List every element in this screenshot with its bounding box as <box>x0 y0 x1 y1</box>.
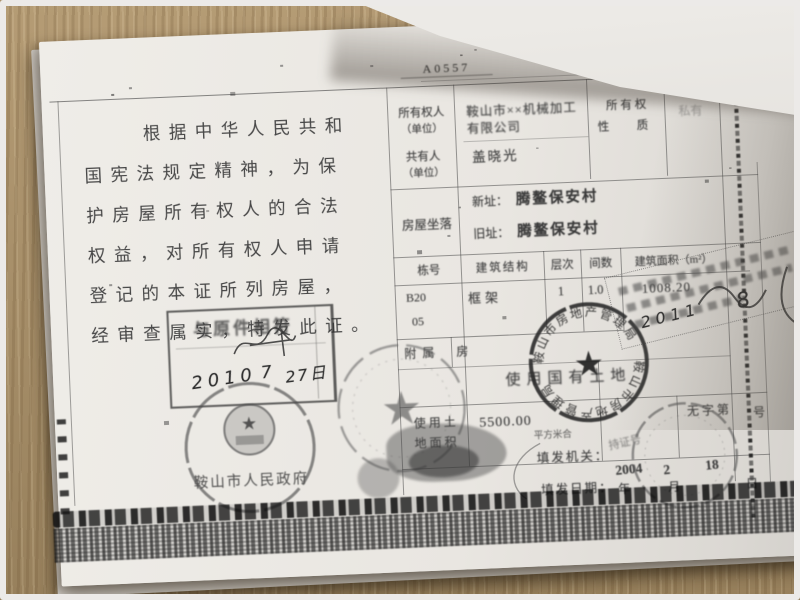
toner-speckles <box>111 94 114 96</box>
owner-label: 所有权人 <box>388 103 455 122</box>
co-owner-value: 盖晓光 <box>472 144 519 166</box>
location-old-value: 腾鳌保安村 <box>517 217 600 241</box>
issue-org-label: 填发机关： <box>536 444 609 466</box>
signature-scribble <box>229 325 310 364</box>
photo-scene: A0557 根据中华人民共和 国宪法规定精神，为保 护房屋所有权人的合法 权益，… <box>0 0 800 600</box>
government-seal: ★ 鞍山市人民政府 <box>177 375 323 521</box>
header-structure: 建筑结构 <box>462 257 543 276</box>
header-building-no: 栋号 <box>399 261 460 279</box>
building-no-value: B20 <box>406 290 427 306</box>
co-owner-label: 共有人 <box>390 147 457 166</box>
location-new-label: 新址： <box>472 191 509 209</box>
header-floors: 层次 <box>544 256 580 273</box>
owner-value-line2: 有限公司 <box>467 116 522 137</box>
location-new-value: 腾鳌保安村 <box>515 185 598 209</box>
owner-label-unit: （单位） <box>389 120 456 138</box>
table-line <box>463 136 588 142</box>
co-owner-label-unit: （单位） <box>390 164 457 182</box>
building-no-value-line2: 05 <box>412 314 425 329</box>
binding-marks <box>57 419 70 514</box>
structure-value: 框架 <box>468 287 503 307</box>
floors-value: 1 <box>558 284 565 299</box>
emblem-star-icon: ★ <box>241 413 258 434</box>
government-seal-text: 鞍山市人民政府 <box>193 470 309 492</box>
location-label: 房屋坐落 <box>396 213 459 235</box>
toner-smudge <box>357 457 401 499</box>
location-old-label: 旧址： <box>473 223 510 241</box>
land-area-value: 5500.00 <box>479 414 532 432</box>
